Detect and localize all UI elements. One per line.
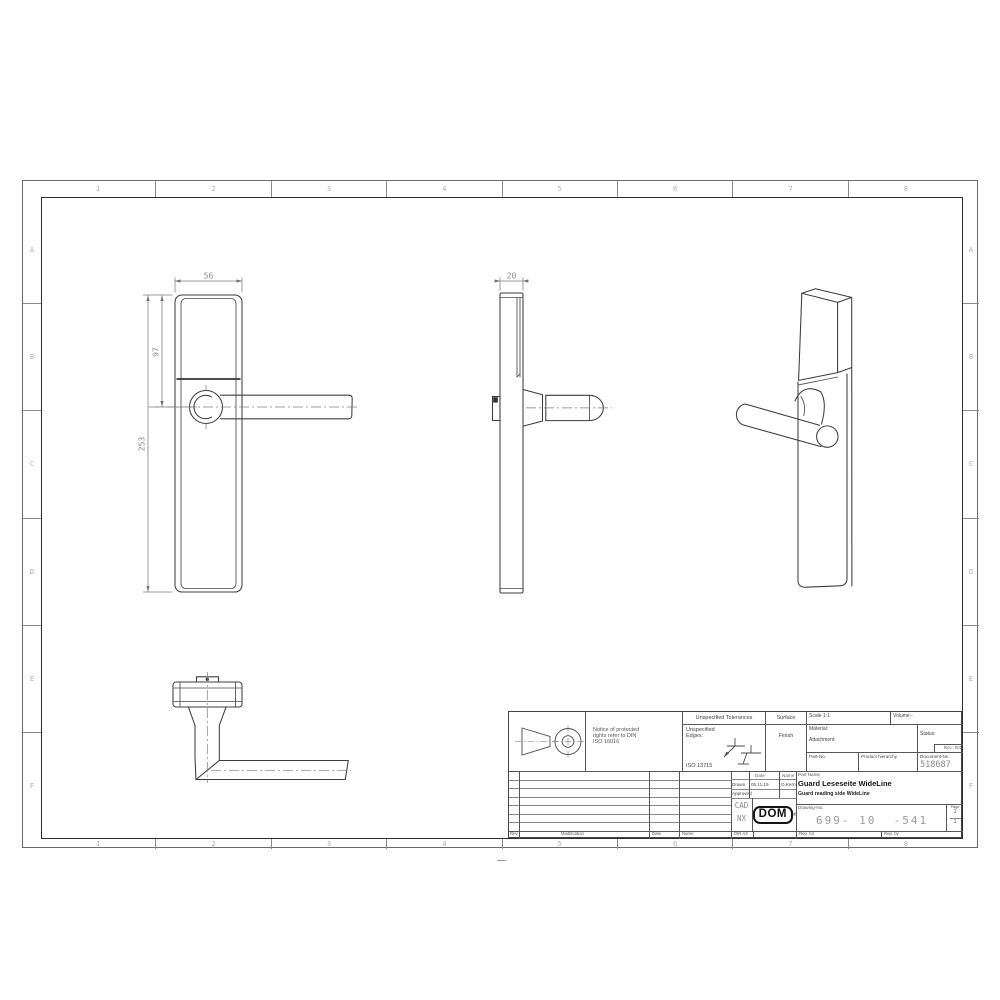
projection-symbol-cell — [509, 712, 586, 771]
logo-cell: DOM ® — [753, 798, 796, 831]
drawn-date: 05.11.19 — [751, 782, 769, 787]
revision-col-line — [679, 771, 680, 839]
document-no-label: Document-No. — [920, 754, 963, 759]
surface-header: Surface — [777, 715, 796, 721]
revision-row-line — [509, 797, 731, 798]
dim-total-height: 253 — [138, 437, 147, 452]
revision-row-line — [509, 814, 731, 815]
revision-col-line — [519, 771, 520, 839]
lever-bottom — [189, 707, 349, 779]
rep-for: Rep. for — [799, 832, 814, 837]
footer-row: Rev Modification Date Name DIN A3 Rep. f… — [509, 831, 963, 838]
product-hierarchy-label: Product hierarchy — [861, 754, 917, 759]
volume-cell: Volume:- — [891, 712, 963, 725]
page-box: Page 1 1 — [946, 804, 963, 831]
revision-col-line — [649, 771, 650, 839]
scale-label: Scale 1:1 — [809, 714, 890, 720]
part-name: Guard Leseseite WideLine — [798, 779, 963, 788]
rev-box: Rev.: 001 — [934, 744, 963, 753]
cad-system-cell: CAD NX — [731, 798, 753, 831]
status-label: Status: — [920, 732, 963, 738]
side-view: 20 — [493, 272, 613, 594]
drawn-name: O.Kern — [781, 782, 796, 787]
drawing-no-label: Drawing-No. — [798, 805, 946, 810]
finish-label: Finish — [766, 733, 806, 739]
notice-line: ISO 16016 — [593, 739, 682, 745]
footer-rev: Rev — [510, 832, 518, 837]
drawing-no-cell: Drawing-No. 699- 10 -541 — [796, 804, 946, 831]
front-view: 56 97 253 — [138, 272, 360, 593]
dom-logo: DOM — [753, 806, 793, 824]
cad-line1: CAD — [731, 801, 752, 810]
revision-row-line — [509, 822, 731, 823]
drawing-sheet-page: 1 2 3 4 5 6 7 8 1 2 3 4 5 6 7 8 A B C D … — [0, 0, 1000, 1000]
page-of: 1 — [947, 820, 963, 826]
iso-view — [736, 289, 851, 587]
attachment-label: Attachment: — [809, 738, 917, 744]
approved-label: Approved — [732, 791, 752, 796]
notice-cell: Notice of protected rights refer to DIN … — [586, 712, 683, 771]
scale-cell: Scale 1:1 — [807, 712, 891, 725]
edge-condition-icon — [703, 731, 763, 769]
product-hierarchy-cell: Product hierarchy — [859, 753, 918, 771]
document-no-cell: Document-No. 518687 — [918, 753, 963, 771]
bottom-view — [173, 672, 351, 783]
revision-row-line — [509, 805, 731, 806]
rep-by: Rep. by — [884, 832, 899, 837]
fold-mark — [497, 860, 506, 861]
reader-module-face — [799, 293, 838, 380]
footer-date: Date — [652, 832, 661, 837]
tolerances-header: Unspecified Tolerances — [696, 715, 753, 721]
cad-line2: NX — [731, 814, 752, 823]
page-num: 1 — [947, 810, 963, 816]
lever-iso — [745, 404, 819, 425]
drawing-views: 56 97 253 — [0, 0, 1000, 1000]
name-header: Name — [782, 773, 794, 778]
surface-header-cell: Surface — [766, 712, 807, 725]
status-cell: Status: Rev.: 001 — [918, 725, 963, 753]
revision-row-line — [509, 788, 731, 789]
drawn-label: Drawn — [732, 782, 745, 787]
drawn-row: Drawn 05.11.19 O.Kern — [731, 779, 796, 789]
part-no-cell: Part-No. — [807, 753, 859, 771]
rev-label: Rev.: 001 — [935, 746, 962, 751]
tolerances-header-cell: Unspecified Tolerances — [683, 712, 766, 725]
part-name-header: Part Name — [798, 772, 963, 777]
approved-row: Approved — [731, 789, 796, 798]
approval-header-row: Date Name — [731, 771, 796, 779]
dim-front-width: 56 — [204, 272, 214, 281]
revision-row-line — [509, 780, 731, 781]
footer-format: DIN A3 — [734, 832, 748, 837]
part-name-en: Guard reading side WideLine — [798, 791, 963, 797]
volume-label: Volume:- — [893, 714, 963, 720]
part-no-label: Part-No. — [809, 754, 858, 759]
document-no-value: 518687 — [920, 760, 963, 770]
material-label: Material: — [809, 727, 917, 733]
first-angle-projection-icon — [509, 712, 586, 771]
edges-cell: Unspecified Edges: ISO 13715 — [683, 725, 766, 771]
dim-handle-height: 97 — [152, 347, 161, 357]
footer-name: Name — [682, 832, 693, 837]
date-header: Date — [755, 773, 765, 778]
footer-modification: Modification — [561, 832, 584, 837]
part-name-cell: Part Name Guard Leseseite WideLine Guard… — [796, 771, 963, 804]
dim-side-depth: 20 — [507, 272, 517, 281]
material-cell: Material: Attachment: — [807, 725, 918, 753]
finish-cell: Finish — [766, 725, 807, 771]
drawing-no-value: 699- 10 -541 — [816, 814, 946, 827]
title-block: Notice of protected rights refer to DIN … — [508, 711, 962, 838]
